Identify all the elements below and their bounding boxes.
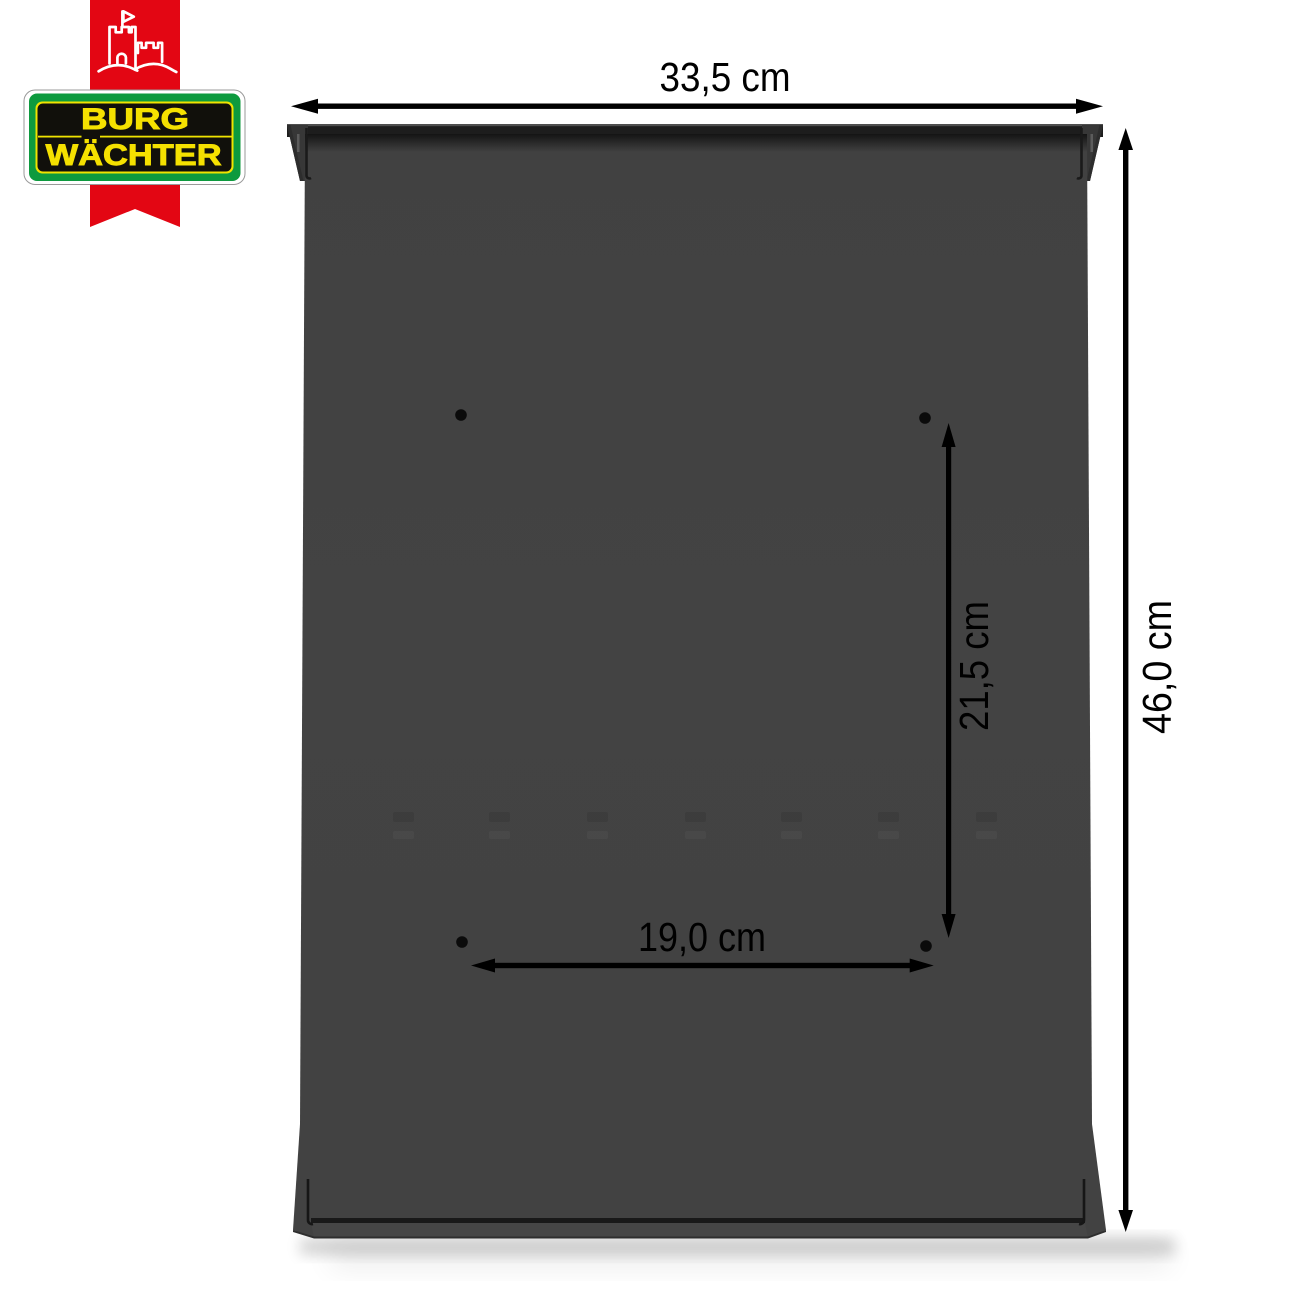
svg-text:33,5 cm: 33,5 cm (660, 54, 791, 100)
svg-text:WÄCHTER: WÄCHTER (46, 139, 222, 172)
svg-text:46,0 cm: 46,0 cm (1134, 600, 1180, 734)
svg-text:21,5 cm: 21,5 cm (951, 601, 997, 731)
svg-text:19,0 cm: 19,0 cm (638, 914, 766, 960)
svg-text:BURG: BURG (81, 103, 189, 136)
